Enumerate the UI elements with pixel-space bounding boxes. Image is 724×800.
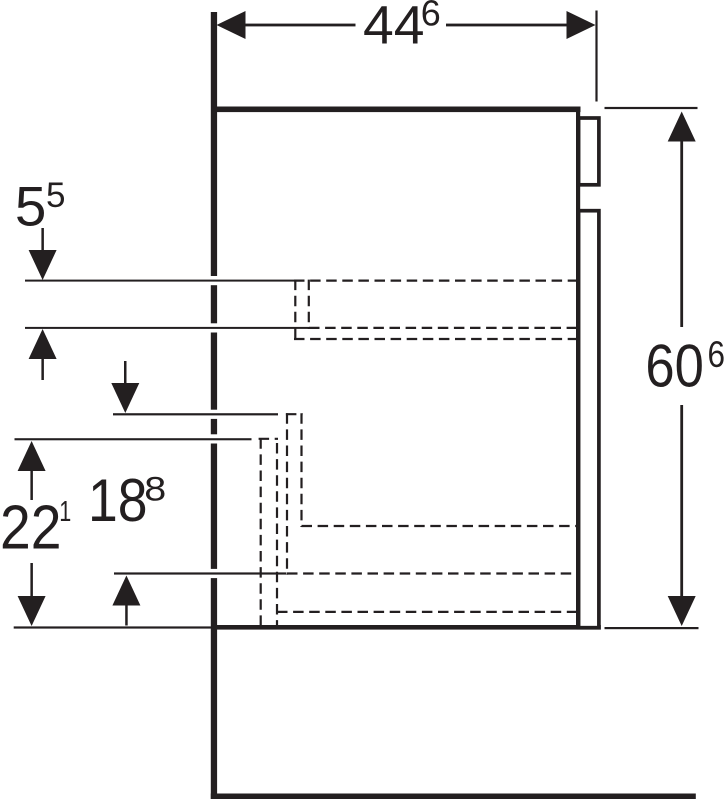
svg-text:8: 8 <box>144 470 166 508</box>
svg-text:18: 18 <box>88 466 148 534</box>
svg-text:6: 6 <box>708 334 724 375</box>
svg-text:1: 1 <box>59 496 71 528</box>
svg-text:22: 22 <box>0 493 62 563</box>
svg-text:60: 60 <box>645 333 704 400</box>
svg-text:44: 44 <box>363 0 425 56</box>
svg-text:5: 5 <box>46 175 66 215</box>
svg-text:6: 6 <box>421 0 441 33</box>
svg-text:5: 5 <box>15 174 46 237</box>
